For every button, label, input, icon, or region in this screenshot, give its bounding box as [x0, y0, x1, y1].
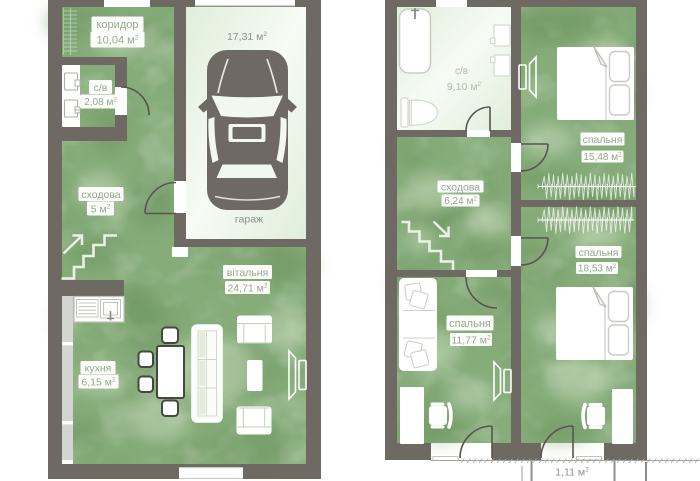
svg-text:спальня: спальня [449, 318, 491, 330]
svg-text:сходова: сходова [441, 181, 480, 193]
svg-text:спальня: спальня [583, 134, 623, 146]
svg-text:с/в: с/в [94, 82, 108, 94]
svg-text:10,04 м2: 10,04 м2 [97, 34, 139, 46]
svg-text:2,08 м2: 2,08 м2 [84, 96, 117, 108]
svg-text:18,53 м2: 18,53 м2 [578, 263, 617, 275]
svg-text:спальня: спальня [579, 247, 619, 259]
svg-text:15,48 м2: 15,48 м2 [583, 151, 622, 163]
svg-text:6,15 м2: 6,15 м2 [81, 376, 116, 388]
svg-text:6,24 м2: 6,24 м2 [444, 195, 477, 207]
svg-text:1,11 м2: 1,11 м2 [555, 466, 589, 478]
svg-text:24,71 м2: 24,71 м2 [227, 282, 267, 294]
svg-text:вітальня: вітальня [227, 267, 269, 279]
svg-text:кухня: кухня [85, 362, 112, 374]
svg-text:сходова: сходова [81, 189, 120, 201]
svg-text:11,77 м2: 11,77 м2 [451, 334, 491, 346]
svg-text:с/в: с/в [455, 66, 468, 77]
svg-text:9,10 м2: 9,10 м2 [447, 81, 482, 93]
svg-text:гараж: гараж [235, 213, 263, 225]
svg-text:17,31 м2: 17,31 м2 [227, 31, 267, 43]
svg-text:коридор: коридор [97, 19, 139, 31]
